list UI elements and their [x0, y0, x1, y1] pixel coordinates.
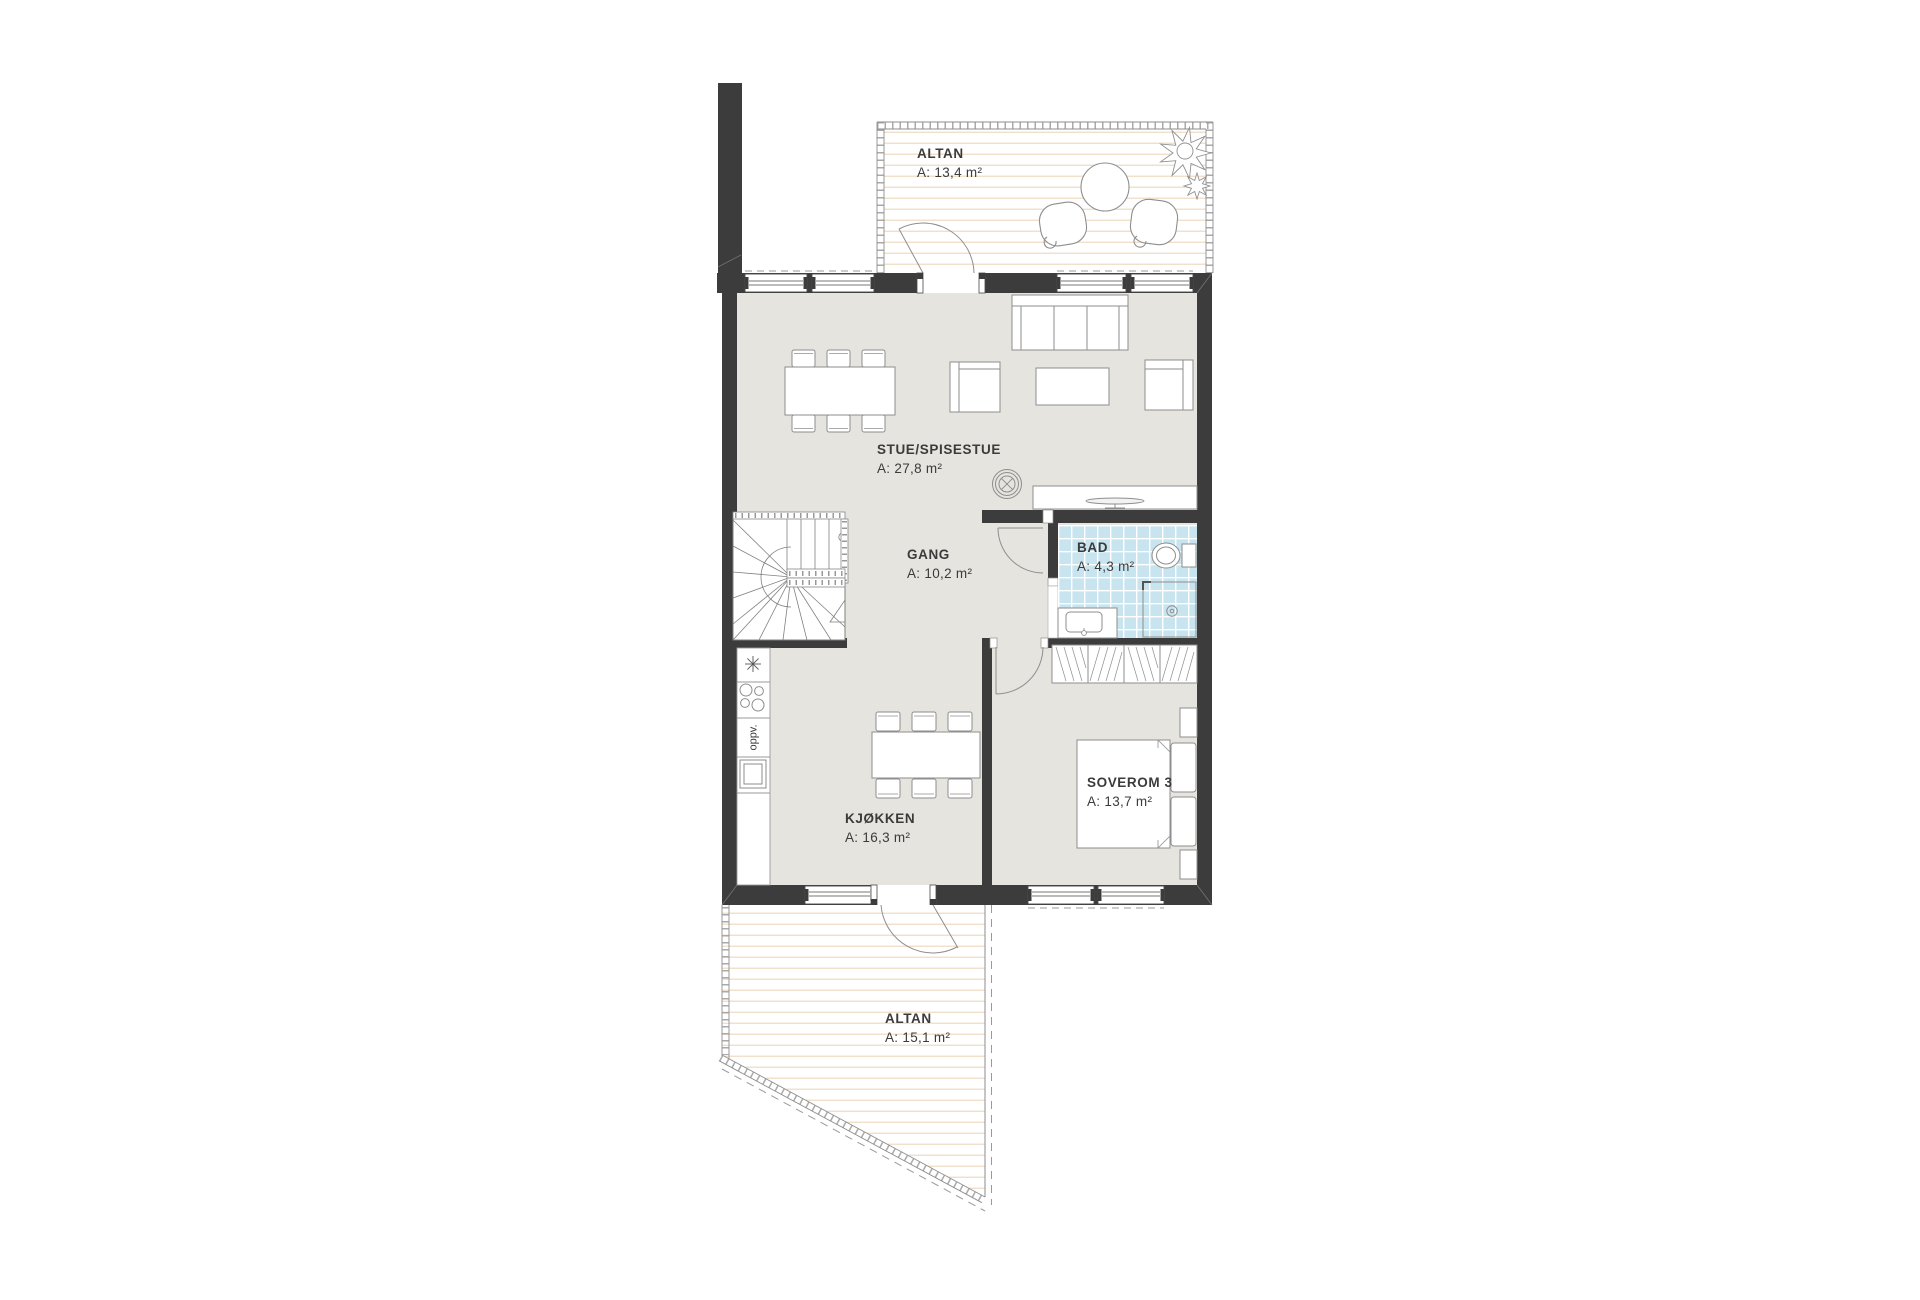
kitchen-table-set: [872, 712, 980, 798]
room-label-gang: GANG A: 10,2 m²: [907, 547, 972, 582]
room-name: STUE/SPISESTUE: [877, 442, 1001, 458]
floor-plan-drawing: [0, 0, 1920, 1300]
nightstand-bottom-icon: [1180, 850, 1197, 879]
room-label-altan-bottom: ALTAN A: 15,1 m²: [885, 1011, 950, 1046]
room-area: A: 16,3 m²: [845, 830, 915, 846]
room-name: KJØKKEN: [845, 811, 915, 827]
room-area: A: 4,3 m²: [1077, 559, 1134, 575]
coffee-table-icon: [1036, 368, 1109, 405]
balcony-bottom: [719, 905, 992, 1211]
sofa-icon: [1012, 295, 1128, 350]
room-area: A: 13,4 m²: [917, 165, 982, 181]
armchair-left-icon: [950, 362, 1000, 412]
balcony-bottom-deck: [722, 905, 985, 1197]
tv-bench-icon: [1033, 486, 1197, 509]
door-opening-north: [917, 273, 985, 293]
room-area: A: 27,8 m²: [877, 461, 1001, 477]
room-name: ALTAN: [885, 1011, 950, 1027]
room-area: A: 15,1 m²: [885, 1030, 950, 1046]
room-name: SOVEROM 3: [1087, 775, 1173, 791]
wardrobe-icon: [1052, 645, 1197, 683]
room-label-bad: BAD A: 4,3 m²: [1077, 540, 1134, 575]
party-wall: [718, 83, 742, 273]
room-label-soverom-3: SOVEROM 3 A: 13,7 m²: [1087, 775, 1173, 810]
room-name: ALTAN: [917, 146, 982, 162]
room-label-stue: STUE/SPISESTUE A: 27,8 m²: [877, 442, 1001, 477]
sink-icon: [1058, 608, 1117, 638]
floor-plan-canvas: ALTAN A: 13,4 m² STUE/SPISESTUE A: 27,8 …: [0, 0, 1920, 1300]
room-area: A: 13,7 m²: [1087, 794, 1173, 810]
door-opening-south: [871, 885, 936, 905]
room-name: BAD: [1077, 540, 1134, 556]
balcony-table: [1081, 163, 1129, 211]
room-label-kjokken: KJØKKEN A: 16,3 m²: [845, 811, 915, 846]
kitchen-counter: [737, 648, 770, 885]
room-area: A: 10,2 m²: [907, 566, 972, 582]
nightstand-top-icon: [1180, 708, 1197, 737]
wall-east: [1197, 293, 1212, 885]
armchair-right-icon: [1145, 360, 1193, 410]
room-name: GANG: [907, 547, 972, 563]
dining-table-set: [785, 350, 895, 432]
dishwasher-label: oppv.: [734, 720, 773, 756]
light-point-icon: [745, 656, 761, 672]
room-label-altan-top: ALTAN A: 13,4 m²: [917, 146, 982, 181]
staircase: [733, 512, 848, 640]
toilet-icon: [1152, 543, 1196, 568]
balcony-top: [877, 122, 1213, 273]
